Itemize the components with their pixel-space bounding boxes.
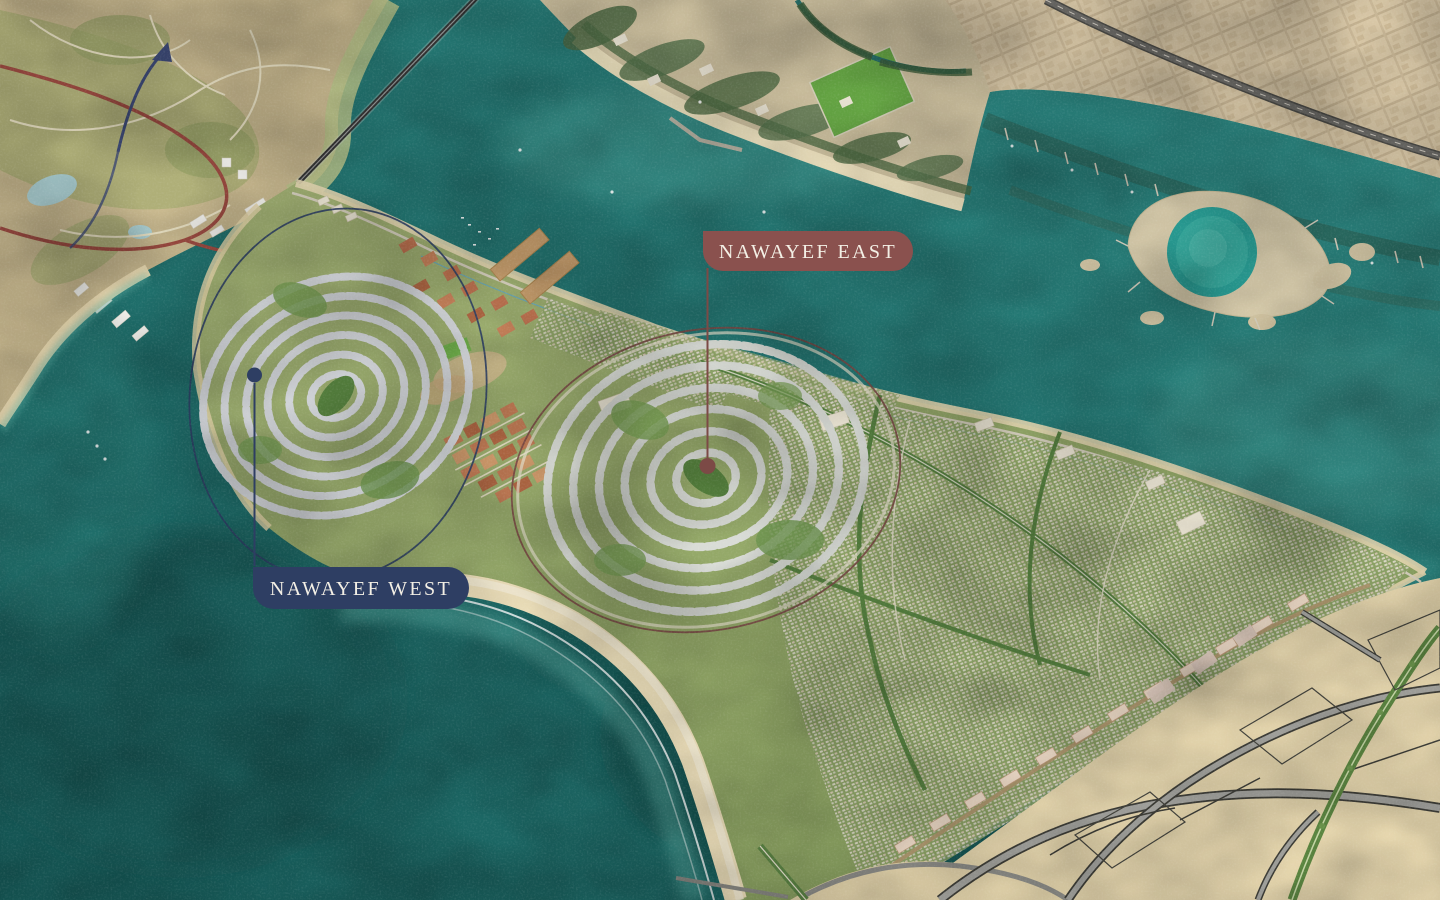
grain-texture [0,0,1440,900]
nawayef-east-marker-dot [700,458,716,474]
nawayef-west-marker-dot [247,368,262,383]
masterplan-map: NAWAYEF EAST NAWAYEF WEST [0,0,1440,900]
nawayef-east-badge-label[interactable]: NAWAYEF EAST [719,241,897,263]
nawayef-west-badge-label[interactable]: NAWAYEF WEST [270,578,452,600]
map-canvas: NAWAYEF EAST NAWAYEF WEST [0,0,1440,900]
